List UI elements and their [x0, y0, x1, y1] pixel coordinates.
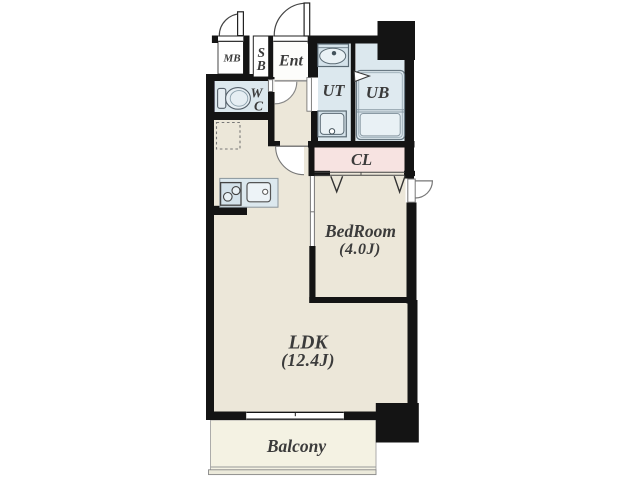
svg-text:Ent: Ent — [278, 53, 304, 70]
svg-text:MB: MB — [222, 52, 240, 64]
svg-text:UT: UT — [323, 81, 346, 100]
svg-text:(12.4J): (12.4J) — [281, 350, 335, 370]
svg-text:UB: UB — [366, 83, 390, 102]
svg-text:CL: CL — [351, 150, 372, 169]
svg-text:(4.0J): (4.0J) — [339, 241, 381, 258]
svg-text:C: C — [254, 99, 264, 114]
svg-text:BedRoom: BedRoom — [324, 221, 396, 241]
svg-text:Balcony: Balcony — [266, 436, 327, 456]
svg-text:B: B — [256, 58, 266, 73]
